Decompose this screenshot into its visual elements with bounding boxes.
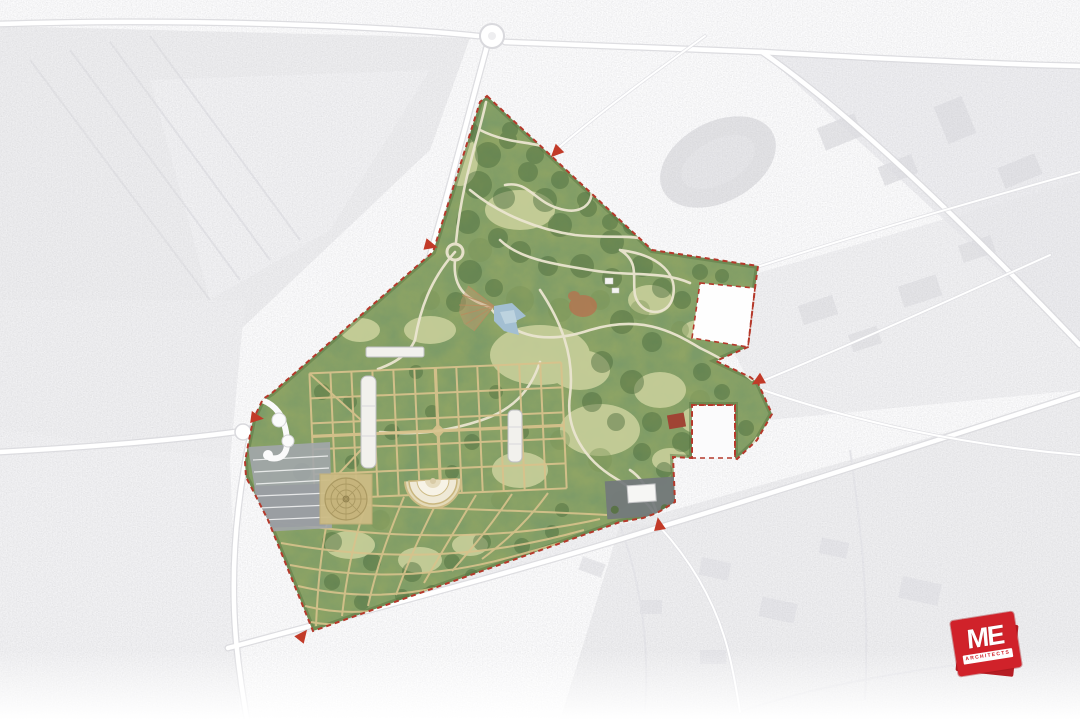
- greenhouse-building: [508, 410, 522, 462]
- excluded-parcel: [692, 283, 755, 347]
- greenhouse-building: [366, 347, 424, 357]
- bottom-fade: [0, 650, 1080, 720]
- excluded-parcel: [692, 405, 735, 458]
- greenhouse-building: [361, 376, 376, 468]
- circular-parterre: [320, 474, 372, 524]
- logo: ME ARCHITECTS: [950, 612, 1036, 692]
- red-roof-building: [667, 413, 686, 430]
- logo-mark: ME ARCHITECTS: [950, 611, 1022, 676]
- masterplan-screenshot: ME ARCHITECTS: [0, 0, 1080, 720]
- map-canvas: [0, 0, 1080, 720]
